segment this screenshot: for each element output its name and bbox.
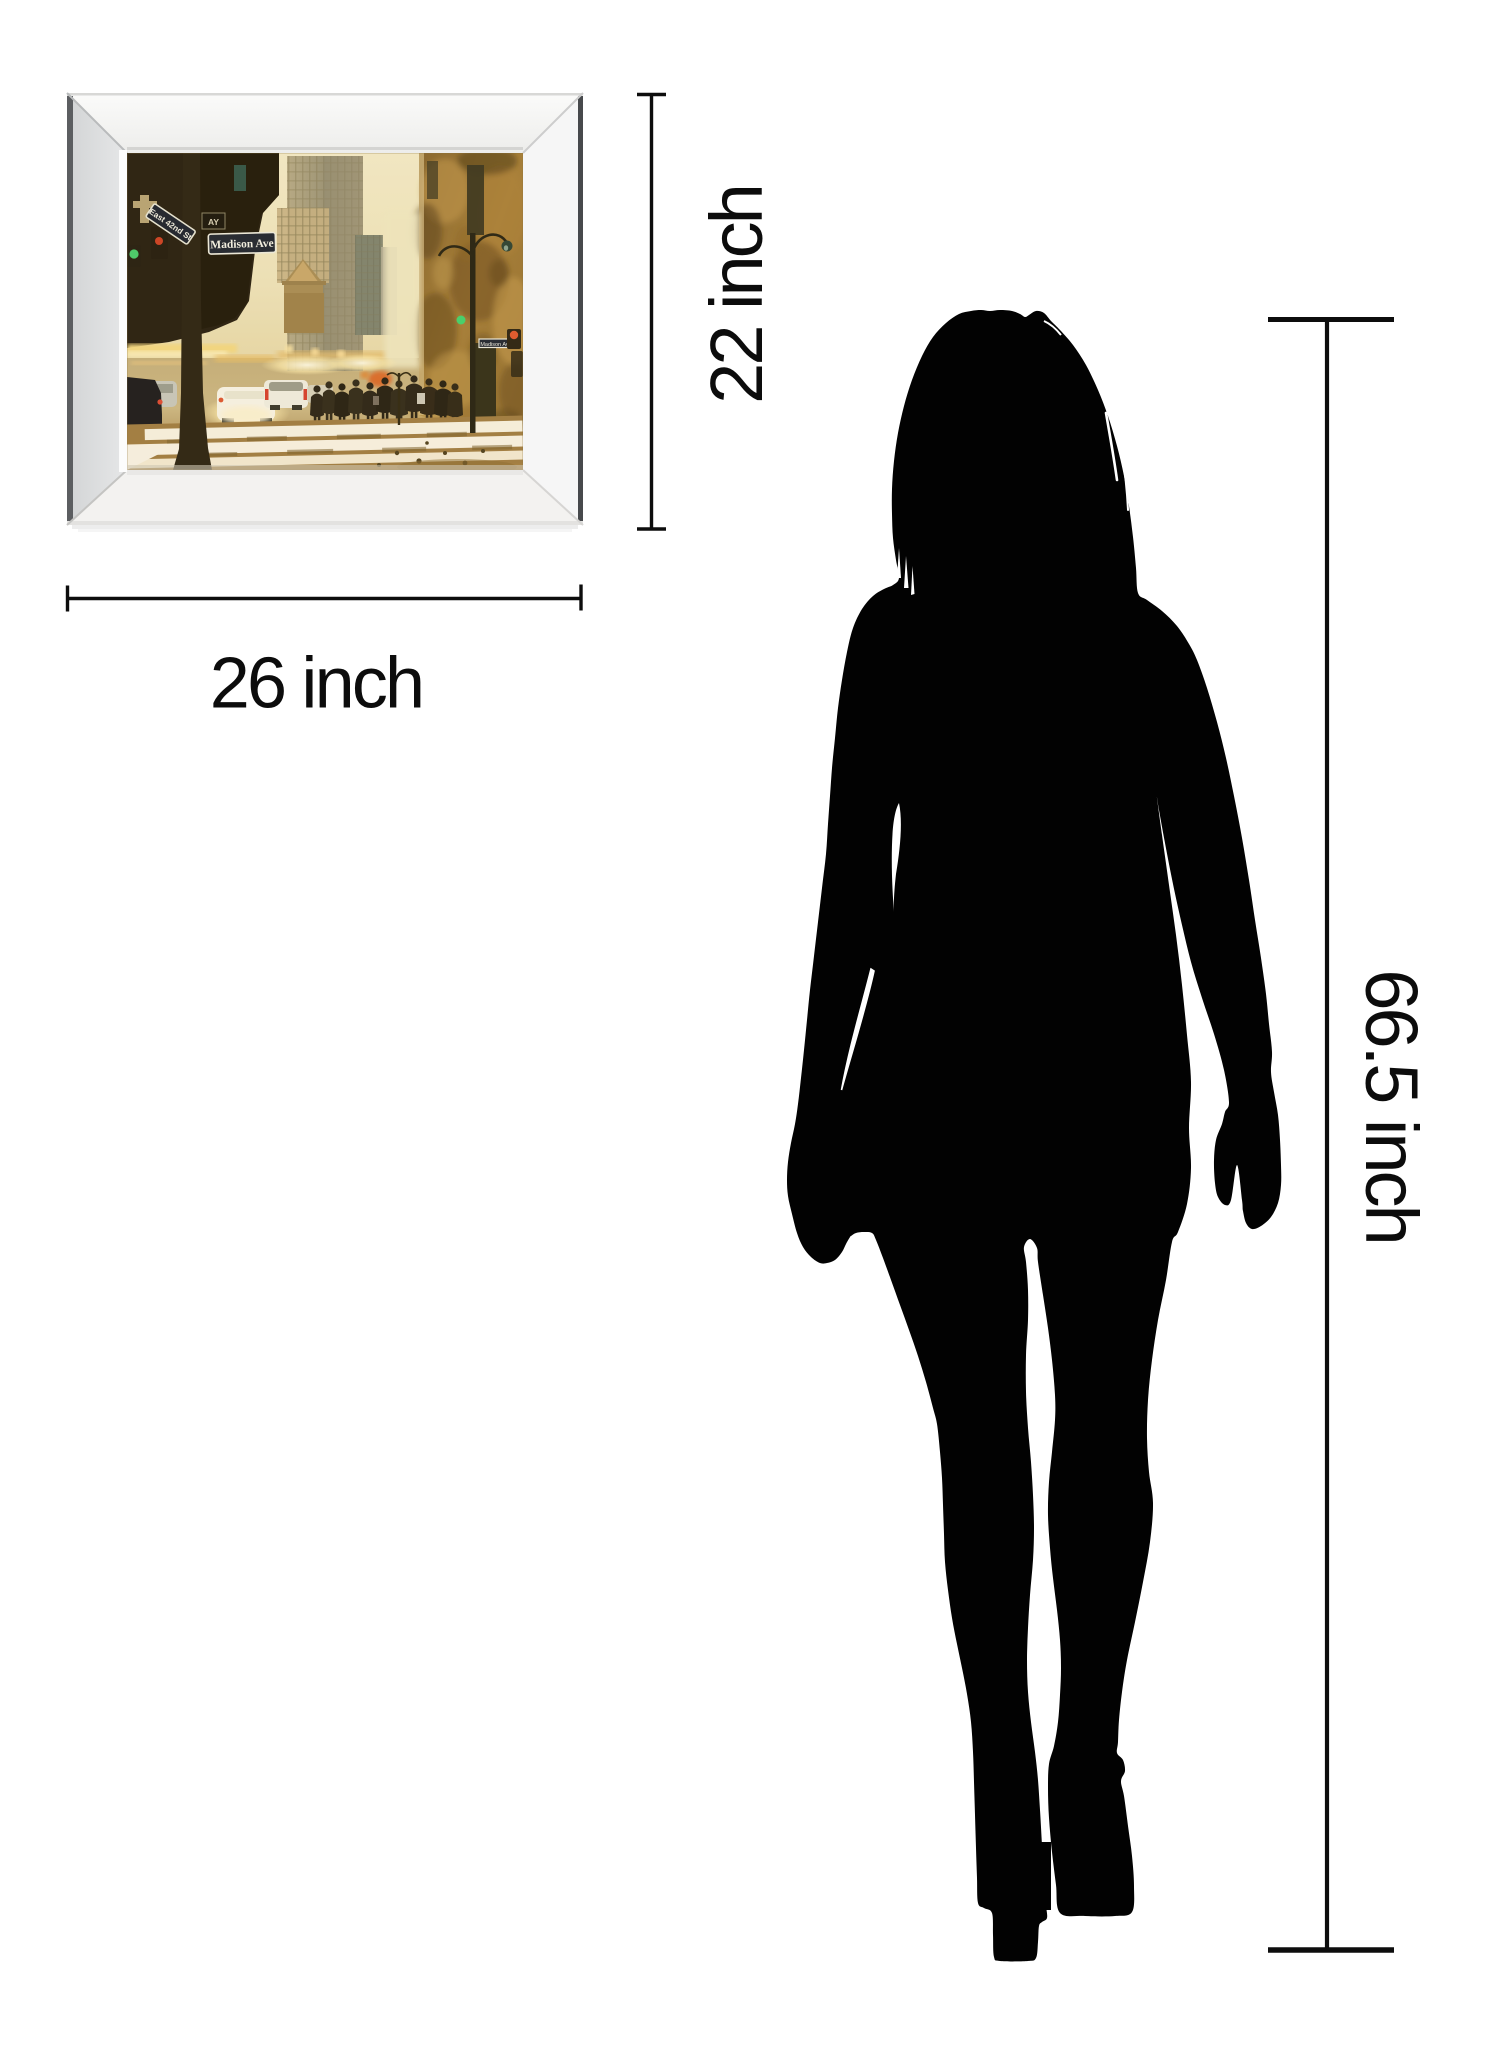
svg-text:22 inch: 22 inch [695, 186, 778, 404]
svg-text:26 inch: 26 inch [210, 644, 423, 724]
svg-text:66.5 inch: 66.5 inch [1350, 969, 1433, 1242]
